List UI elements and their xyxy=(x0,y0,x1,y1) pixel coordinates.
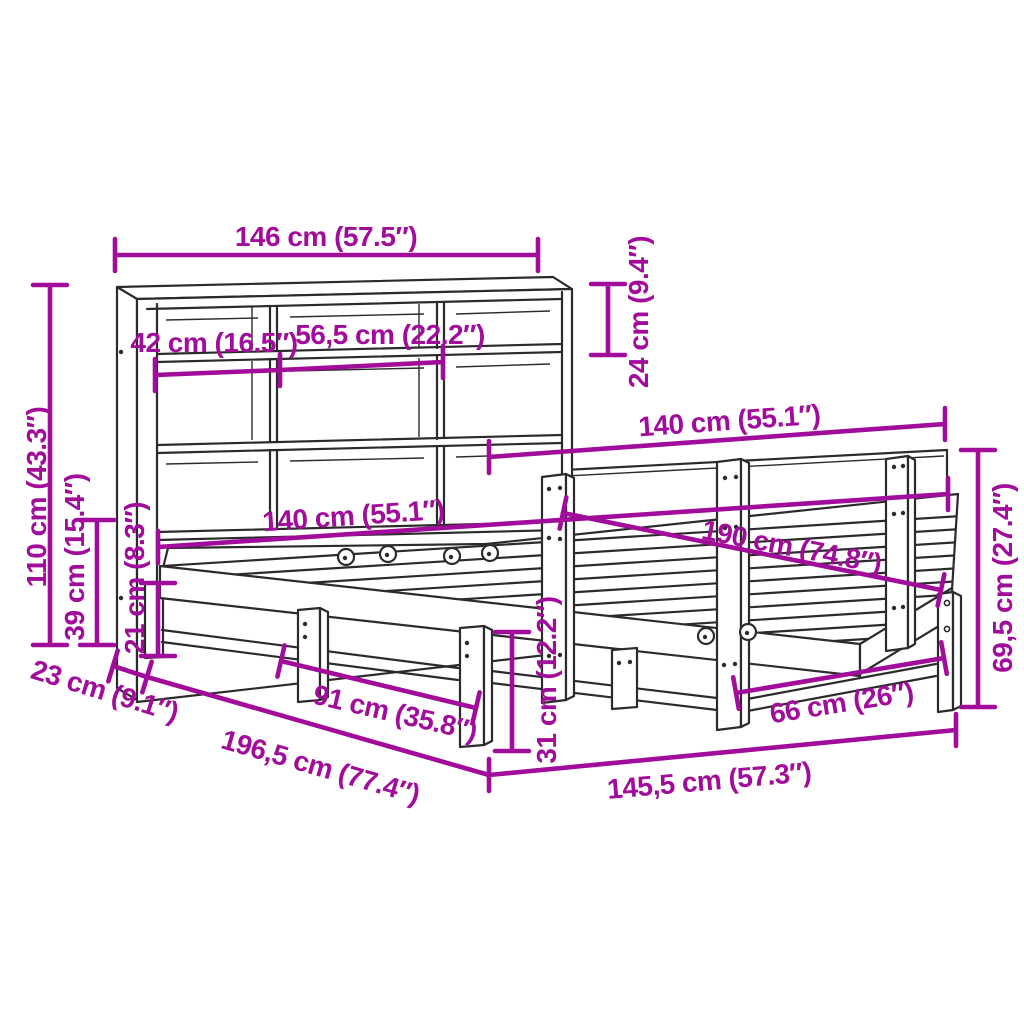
dim-lower-shelf-height-label: 39 cm (15.4″) xyxy=(59,473,90,640)
dim-headboard-panel-height: 69,5 cm (27.4″) xyxy=(961,450,1018,707)
diagram-canvas: 146 cm (57.5″) 24 cm (9.4″) 42 cm (16.5″… xyxy=(0,0,1024,1024)
post-side xyxy=(741,459,749,727)
leg-side xyxy=(484,626,492,745)
lower-stretcher xyxy=(483,670,717,710)
dim-compartment-middle-width-label: 56,5 cm (22.2″) xyxy=(295,319,485,350)
dim-bookcase-width-label: 146 cm (57.5″) xyxy=(235,221,417,252)
dim-frame-height-label: 31 cm (12.2″) xyxy=(531,596,562,763)
post xyxy=(886,456,908,651)
dim-base-rail-height-label: 21 cm (8.3″) xyxy=(119,502,150,654)
dim-lower-shelf-height: 39 cm (15.4″) xyxy=(59,473,114,645)
dim-bookcase-height-label: 110 cm (43.3″) xyxy=(21,407,52,588)
dim-total-length-label: 196,5 cm (77.4″) xyxy=(218,724,423,810)
leg-side xyxy=(953,592,961,710)
leg xyxy=(612,648,637,709)
dim-compartment-left-width-label: 42 cm (16.5″) xyxy=(130,327,297,358)
post-side xyxy=(566,474,574,700)
post-side xyxy=(908,456,915,648)
dim-headboard-panel-height-label: 69,5 cm (27.4″) xyxy=(987,483,1018,673)
leg xyxy=(938,592,953,712)
dim-frame-width-label: 145,5 cm (57.3″) xyxy=(606,756,813,805)
dim-bookcase-width: 146 cm (57.5″) xyxy=(115,221,538,271)
dim-top-shelf-height: 24 cm (9.4″) xyxy=(591,236,654,388)
dim-top-shelf-height-label: 24 cm (9.4″) xyxy=(623,236,654,388)
